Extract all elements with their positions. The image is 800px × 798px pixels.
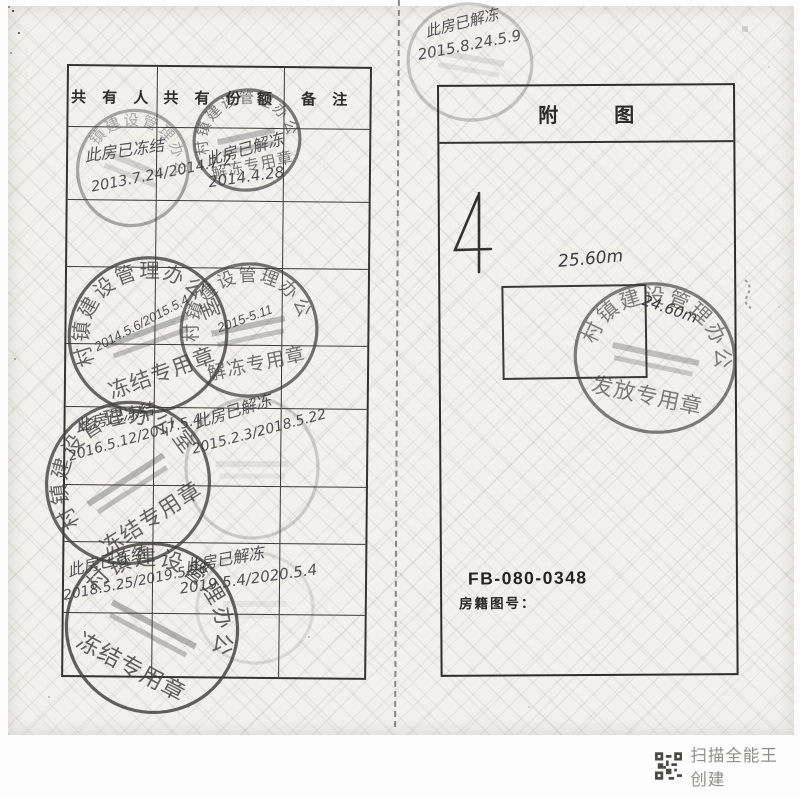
table-cell — [280, 487, 366, 545]
table-cell — [66, 267, 156, 345]
table-cell — [152, 614, 280, 677]
table-cell — [282, 346, 368, 410]
table-header-share: 共 有 份 额 — [157, 67, 285, 129]
camscanner-text: 扫描全能王 创建 — [690, 742, 800, 790]
qr-code-icon — [655, 750, 682, 782]
table-cell — [67, 200, 157, 268]
table-header-co-owner: 共 有 人 — [68, 66, 158, 128]
table-cell — [155, 268, 283, 346]
table-cell — [63, 613, 153, 676]
table-cell — [153, 486, 281, 544]
table-cell — [156, 201, 284, 269]
table-header-remarks: 备 注 — [284, 68, 370, 130]
table-cell — [283, 202, 369, 270]
camscanner-watermark: 扫描全能王 创建 — [655, 742, 800, 790]
table-cell — [282, 269, 368, 347]
scanned-document-page: 共 有 人 共 有 份 额 备 注 此房已冻结 2013.7.24/2014.7… — [0, 0, 800, 798]
table-cell — [279, 615, 365, 678]
attached-figure-title: 附 图 — [439, 85, 733, 144]
scan-noise-specks — [8, 6, 10, 8]
figure-code: FB-080-0348 — [468, 567, 588, 589]
table-cell — [64, 485, 154, 543]
table-cell — [284, 129, 370, 203]
plot-outline-rectangle — [501, 284, 647, 380]
figure-number-label: 房籍图号： — [459, 592, 537, 613]
